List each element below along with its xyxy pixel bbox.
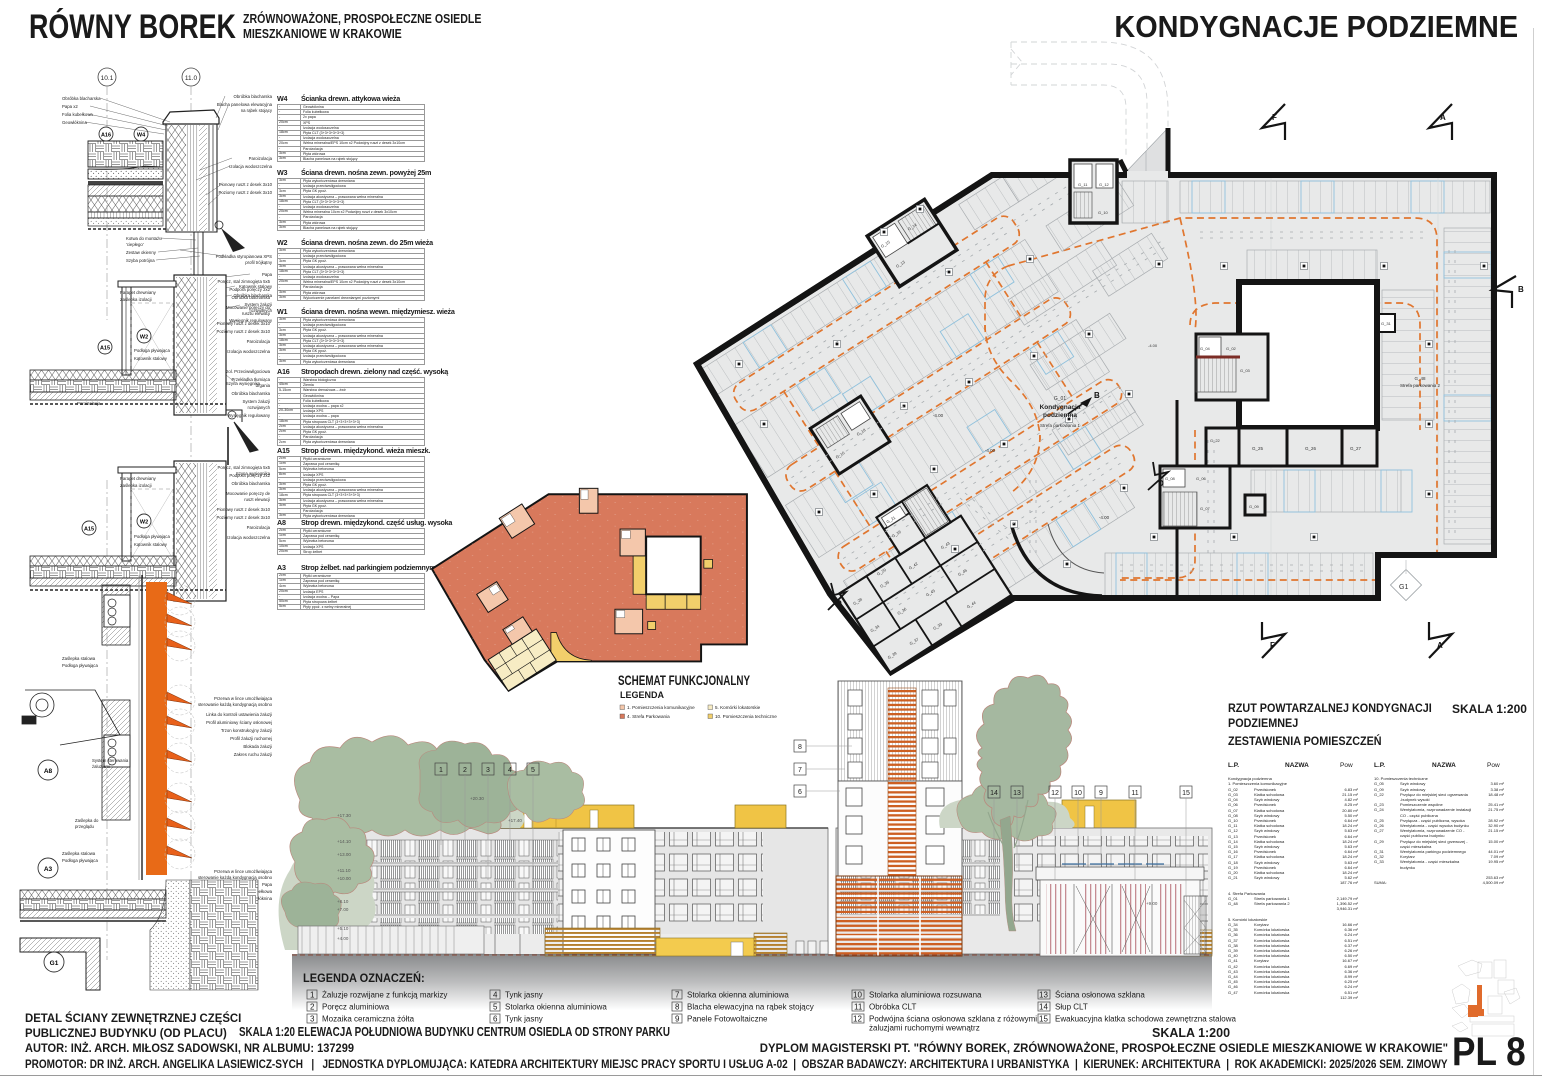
svg-text:1: 1 (310, 991, 315, 1000)
svg-text:8: 8 (675, 1003, 680, 1012)
svg-text:6: 6 (493, 1015, 498, 1024)
svg-text:Podwójna ściana osłonowa szkla: Podwójna ściana osłonowa szklana z różow… (869, 1015, 1037, 1024)
svg-text:Ewakuacyjna klatka schodowa ze: Ewakuacyjna klatka schodowa zewnętrzna s… (1055, 1015, 1237, 1024)
svg-text:Tynk jasny: Tynk jasny (505, 991, 543, 1000)
svg-text:Blacha elewacyjna na rąbek sto: Blacha elewacyjna na rąbek stojący (687, 1003, 814, 1012)
svg-text:Obróbka CLT: Obróbka CLT (869, 1003, 917, 1012)
svg-text:Ściana osłonowa szklana: Ściana osłonowa szklana (1055, 991, 1145, 1000)
svg-text:Słup CLT: Słup CLT (1055, 1003, 1088, 1012)
svg-text:Stolarka okienna aluminiowa: Stolarka okienna aluminiowa (687, 991, 789, 1000)
svg-text:7: 7 (675, 991, 680, 1000)
svg-text:12: 12 (853, 1015, 862, 1024)
svg-text:Mozaika ceramiczna żółta: Mozaika ceramiczna żółta (322, 1015, 415, 1024)
svg-text:9: 9 (675, 1015, 680, 1024)
svg-text:13: 13 (1039, 991, 1048, 1000)
svg-text:15: 15 (1039, 1015, 1048, 1024)
svg-text:11: 11 (854, 1003, 863, 1012)
svg-text:Panele Fotowoltaiczne: Panele Fotowoltaiczne (687, 1015, 768, 1024)
svg-text:Stolarka aluminiowa rozsuwana: Stolarka aluminiowa rozsuwana (869, 991, 982, 1000)
svg-text:Stolarka okienna aluminiowa: Stolarka okienna aluminiowa (505, 1003, 607, 1012)
svg-text:Żaluzje rozwijane z funkcją ma: Żaluzje rozwijane z funkcją markizy (322, 991, 447, 1000)
svg-text:5: 5 (493, 1003, 498, 1012)
svg-text:Poręcz aluminiowa: Poręcz aluminiowa (322, 1003, 390, 1012)
svg-text:14: 14 (1039, 1003, 1048, 1012)
svg-text:2: 2 (310, 1003, 315, 1012)
svg-text:Tynk jasny: Tynk jasny (505, 1015, 543, 1024)
svg-text:10: 10 (853, 991, 862, 1000)
svg-text:żaluzjami ruchomymi wewnątrz: żaluzjami ruchomymi wewnątrz (869, 1024, 980, 1033)
svg-text:3: 3 (310, 1015, 315, 1024)
svg-text:4: 4 (493, 991, 498, 1000)
